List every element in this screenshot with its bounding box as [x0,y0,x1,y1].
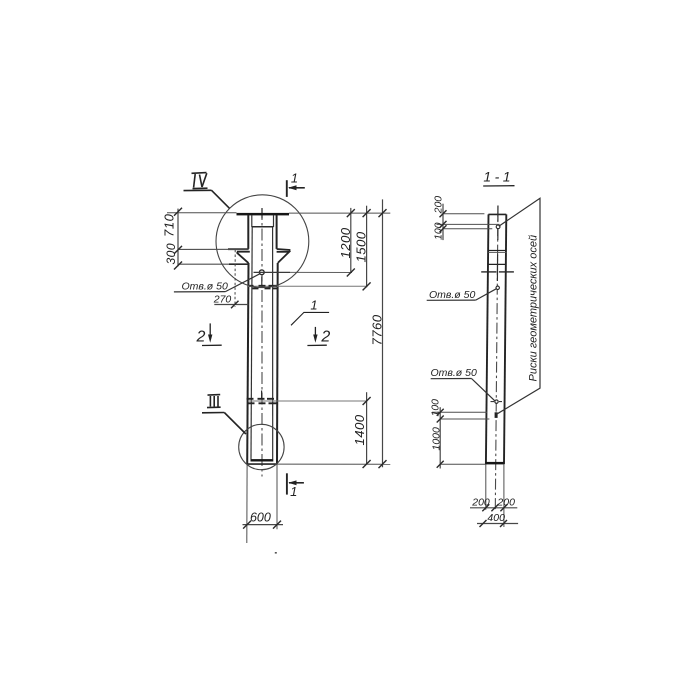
svg-text:400: 400 [487,512,505,524]
svg-text:Отв.ø 50: Отв.ø 50 [429,289,475,301]
svg-text:710: 710 [162,213,177,237]
svg-text:200: 200 [496,496,515,508]
svg-text:200: 200 [433,196,445,215]
svg-text:1: 1 [290,484,297,499]
svg-text:Отв.ø 50: Отв.ø 50 [431,367,477,379]
svg-text:1: 1 [291,171,298,186]
svg-text:Риски геометрических осей: Риски геометрических осей [528,235,540,382]
svg-text:1-1: 1-1 [483,169,514,185]
svg-text:200: 200 [471,496,490,508]
svg-text:Отв.ø 50: Отв.ø 50 [182,281,228,293]
svg-text:2: 2 [196,329,206,346]
svg-text:100: 100 [433,222,445,240]
svg-text:600: 600 [250,510,271,524]
svg-text:300: 300 [164,243,178,265]
svg-text:7760: 7760 [370,314,385,345]
svg-text:1200: 1200 [338,227,353,258]
svg-text:1500: 1500 [354,231,369,262]
svg-text:1400: 1400 [352,414,367,445]
svg-text:1: 1 [310,298,317,313]
svg-text:1000: 1000 [430,427,442,451]
svg-text:100: 100 [429,399,441,417]
svg-text:270: 270 [213,293,232,305]
svg-text:2: 2 [320,329,330,346]
